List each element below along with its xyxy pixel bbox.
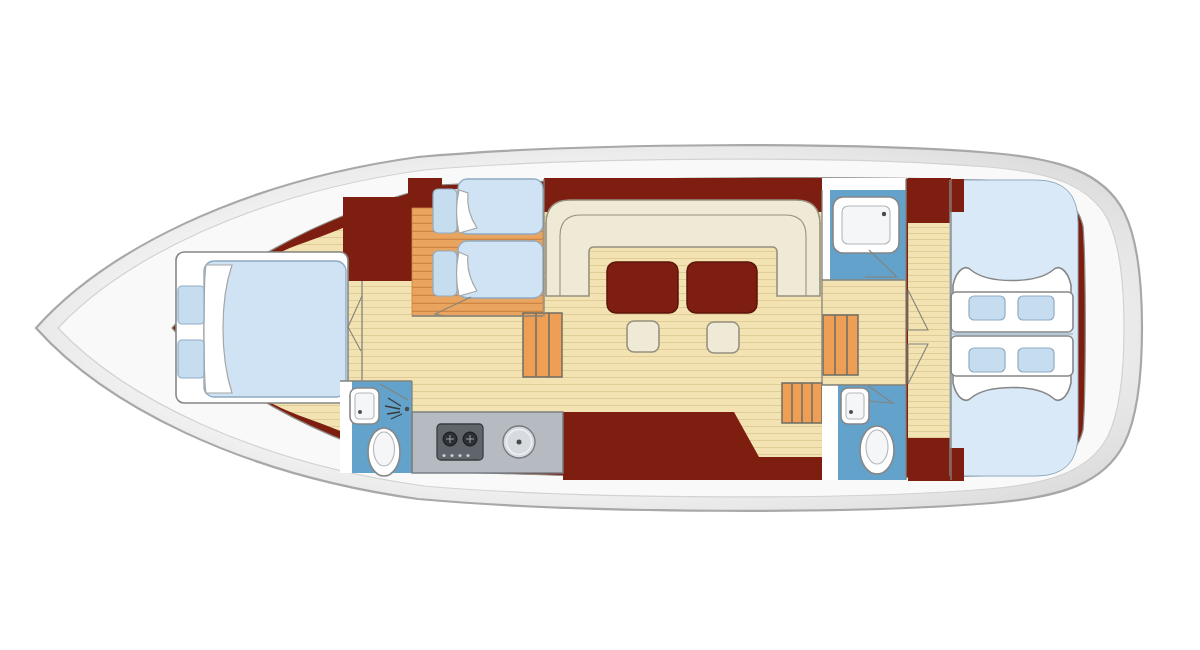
steps-guest-cabin — [523, 313, 562, 377]
aft-corner-block-top — [950, 179, 964, 212]
stool-2 — [707, 322, 739, 353]
steps-aft-lower — [782, 383, 822, 423]
galley — [412, 412, 563, 473]
washbasin-icon — [350, 388, 379, 424]
stove-icon — [437, 424, 483, 460]
seat-cushion — [1018, 348, 1054, 372]
bathroom-forward — [340, 381, 412, 476]
boat-floorplan — [0, 0, 1200, 650]
table-1 — [607, 262, 678, 313]
forward-cabin — [176, 252, 362, 403]
stool-1 — [627, 321, 659, 352]
nightstand-2 — [178, 340, 204, 378]
wardrobe-block — [343, 197, 412, 281]
washbasin-aft-icon — [841, 388, 869, 424]
corridor-block-bottom — [908, 438, 951, 481]
round-sink-icon — [503, 426, 535, 458]
bathroom-aft — [822, 385, 906, 480]
bunk2-pillow — [433, 251, 457, 296]
bathroom-aft-wall — [822, 385, 838, 480]
nightstand-1 — [178, 286, 204, 324]
corridor-block-top — [908, 178, 951, 223]
seat-cushion — [1018, 296, 1054, 320]
shower-tray — [833, 197, 899, 253]
galley-counter — [412, 412, 563, 473]
shower-room-wall-left — [822, 178, 830, 280]
bunk1-pillow — [433, 189, 457, 233]
aft-corner-block-bottom — [950, 448, 964, 481]
toilet-aft-icon — [860, 426, 894, 474]
seat-cushion — [969, 348, 1005, 372]
toilet-icon — [368, 428, 400, 476]
shower-room-aft — [822, 178, 906, 280]
seat-cushion — [969, 296, 1005, 320]
steps-aft-starboard — [823, 315, 858, 375]
boat-floorplan-canvas — [0, 0, 1200, 650]
table-2 — [687, 262, 757, 313]
aft-cabin — [950, 179, 1078, 481]
shower-room-wall-top — [822, 178, 906, 190]
